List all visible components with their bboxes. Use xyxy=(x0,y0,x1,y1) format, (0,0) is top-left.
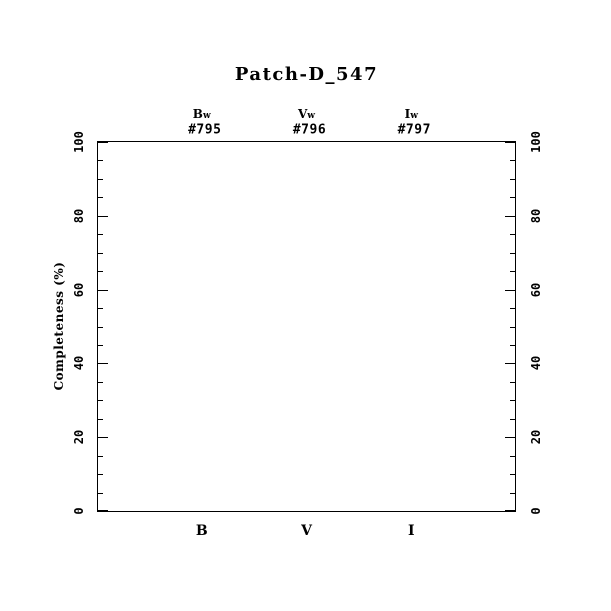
y-minor-tick-right xyxy=(510,493,515,494)
y-minor-tick-right xyxy=(510,271,515,272)
y-tick-label-right: 20 xyxy=(529,430,543,444)
y-major-tick-left xyxy=(98,437,108,438)
x-category-label: B xyxy=(196,523,208,539)
y-tick-label-left: 40 xyxy=(72,356,86,370)
plot-area xyxy=(97,141,516,512)
y-minor-tick-left xyxy=(98,382,103,383)
y-minor-tick-right xyxy=(510,419,515,420)
exposure-number-label: #797 xyxy=(398,123,431,138)
y-minor-tick-right xyxy=(510,308,515,309)
y-minor-tick-left xyxy=(98,493,103,494)
y-tick-label-left: 100 xyxy=(72,131,86,153)
y-minor-tick-left xyxy=(98,327,103,328)
filter-subscript: w xyxy=(410,111,418,121)
y-tick-label-right: 60 xyxy=(529,282,543,296)
y-tick-label-right: 100 xyxy=(529,131,543,153)
y-major-tick-right xyxy=(505,510,515,511)
filter-name-label: Iw xyxy=(405,107,418,121)
y-minor-tick-left xyxy=(98,160,103,161)
y-minor-tick-right xyxy=(510,253,515,254)
y-tick-label-left: 80 xyxy=(72,209,86,223)
y-major-tick-right xyxy=(505,363,515,364)
exposure-number-label: #796 xyxy=(293,123,326,138)
plot-title: Patch-D_547 xyxy=(97,64,516,85)
y-tick-label-left: 20 xyxy=(72,430,86,444)
y-major-tick-right xyxy=(505,216,515,217)
y-minor-tick-left xyxy=(98,179,103,180)
y-major-tick-right xyxy=(505,290,515,291)
y-minor-tick-right xyxy=(510,474,515,475)
y-tick-label-right: 0 xyxy=(529,507,543,514)
filter-band: B xyxy=(193,107,203,121)
y-tick-label-right: 40 xyxy=(529,356,543,370)
y-minor-tick-left xyxy=(98,474,103,475)
y-minor-tick-left xyxy=(98,308,103,309)
y-minor-tick-left xyxy=(98,456,103,457)
x-category-label: V xyxy=(301,523,312,539)
y-minor-tick-right xyxy=(510,400,515,401)
y-minor-tick-left xyxy=(98,234,103,235)
y-tick-label-left: 60 xyxy=(72,282,86,296)
y-major-tick-left xyxy=(98,216,108,217)
y-major-tick-left xyxy=(98,510,108,511)
y-minor-tick-right xyxy=(510,456,515,457)
filter-subscript: w xyxy=(203,111,211,121)
y-minor-tick-left xyxy=(98,419,103,420)
y-minor-tick-right xyxy=(510,234,515,235)
y-axis-label: Completeness (%) xyxy=(52,262,66,391)
y-minor-tick-right xyxy=(510,179,515,180)
y-major-tick-right xyxy=(505,142,515,143)
plot-canvas: Patch-D_547 Completeness (%) 00202040406… xyxy=(0,0,611,611)
y-minor-tick-right xyxy=(510,382,515,383)
y-major-tick-left xyxy=(98,290,108,291)
y-minor-tick-right xyxy=(510,327,515,328)
y-minor-tick-right xyxy=(510,345,515,346)
y-minor-tick-left xyxy=(98,197,103,198)
y-major-tick-left xyxy=(98,142,108,143)
y-minor-tick-left xyxy=(98,253,103,254)
y-minor-tick-left xyxy=(98,271,103,272)
y-minor-tick-left xyxy=(98,345,103,346)
x-category-label: I xyxy=(408,523,415,539)
exposure-number-label: #795 xyxy=(188,123,221,138)
filter-name-label: Bw xyxy=(193,107,211,121)
y-major-tick-right xyxy=(505,437,515,438)
y-minor-tick-right xyxy=(510,197,515,198)
filter-subscript: w xyxy=(307,111,315,121)
filter-name-label: Vw xyxy=(298,107,315,121)
y-minor-tick-left xyxy=(98,400,103,401)
y-major-tick-left xyxy=(98,363,108,364)
y-minor-tick-right xyxy=(510,160,515,161)
y-tick-label-right: 80 xyxy=(529,209,543,223)
filter-band: V xyxy=(298,107,307,121)
y-tick-label-left: 0 xyxy=(72,507,86,514)
